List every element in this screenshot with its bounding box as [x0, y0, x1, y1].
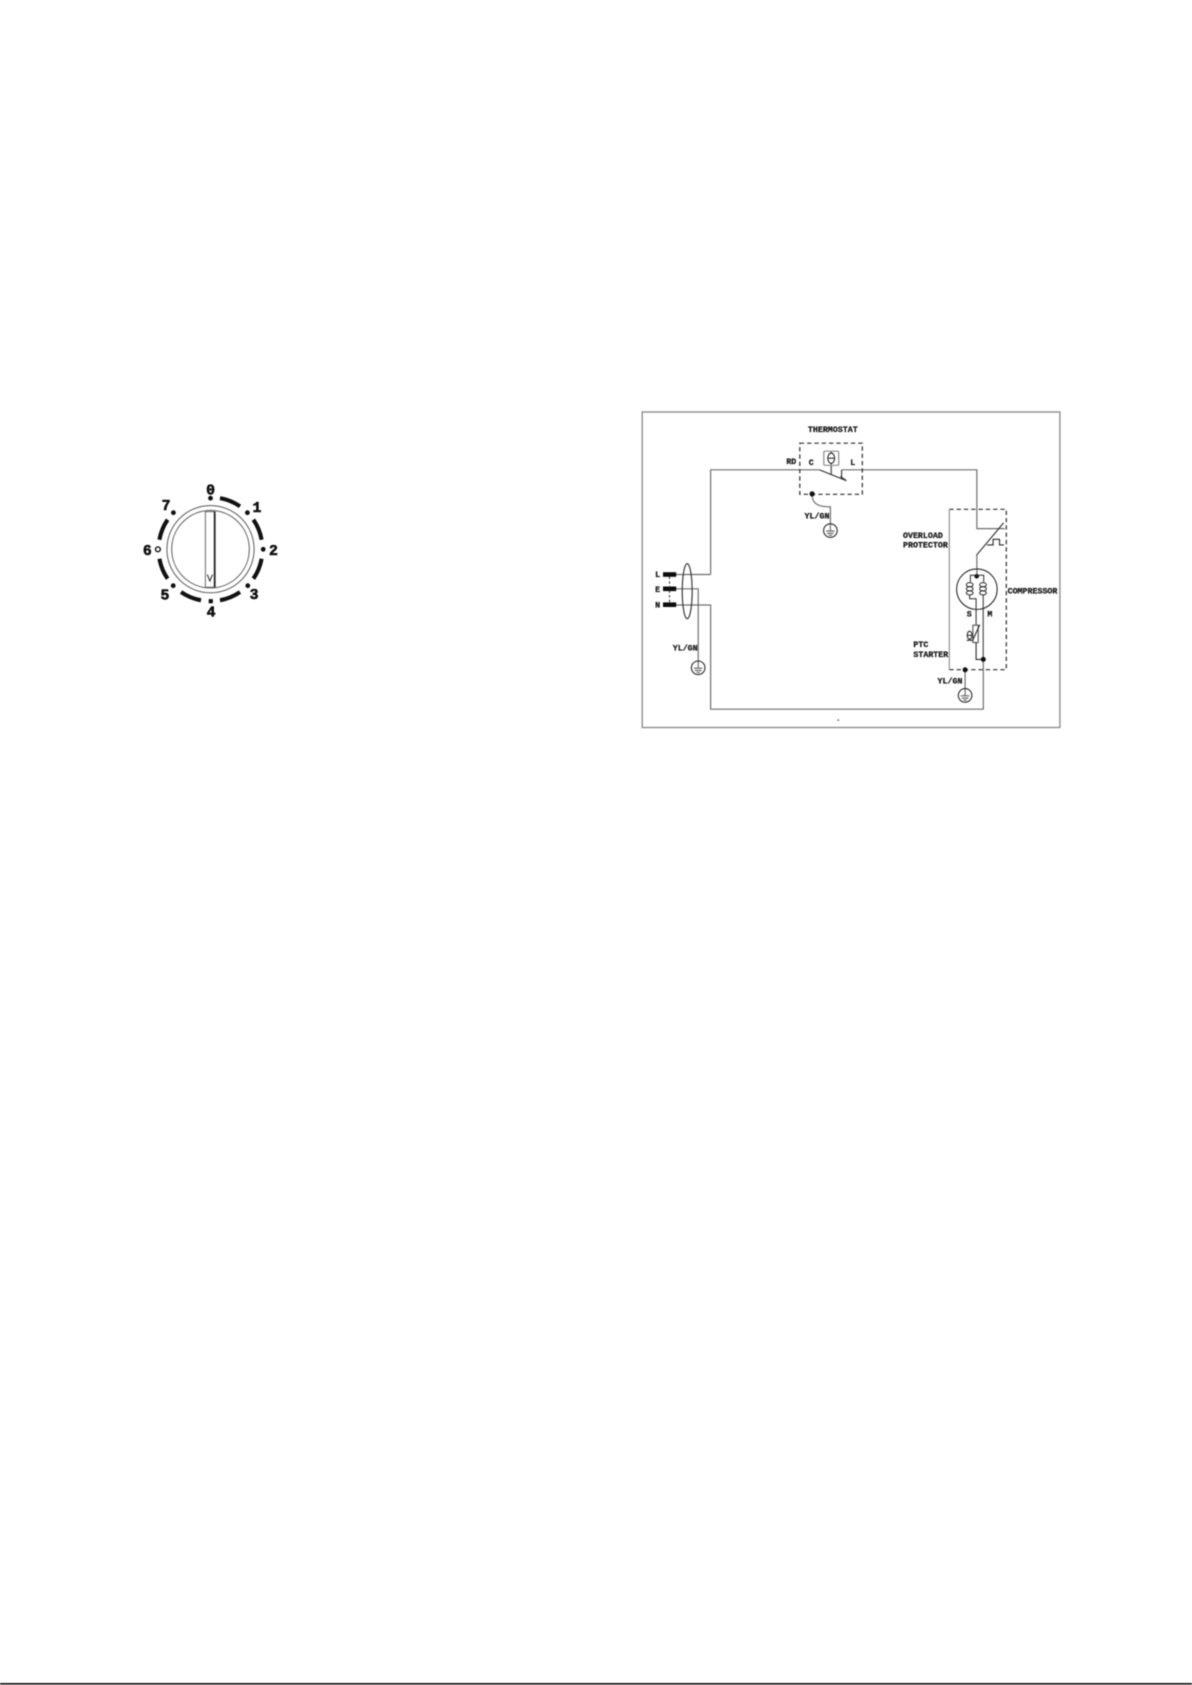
svg-text:7: 7 — [162, 499, 171, 515]
svg-text:E: E — [655, 586, 660, 595]
svg-text:6: 6 — [143, 544, 152, 560]
svg-text:5: 5 — [160, 588, 169, 604]
svg-text:YL/GN: YL/GN — [673, 643, 698, 653]
svg-text:RD: RD — [786, 458, 796, 467]
svg-text:2: 2 — [269, 544, 278, 560]
svg-text:PROTECTOR: PROTECTOR — [903, 542, 948, 551]
svg-text:0: 0 — [206, 483, 215, 499]
svg-text:S: S — [967, 611, 972, 620]
svg-text:COMPRESSOR: COMPRESSOR — [1008, 588, 1058, 597]
svg-text:3: 3 — [250, 588, 259, 604]
svg-text:PTC: PTC — [913, 641, 928, 650]
svg-text:OVERLOAD: OVERLOAD — [903, 532, 943, 541]
svg-text:L: L — [655, 571, 660, 580]
svg-text:1: 1 — [253, 501, 262, 517]
svg-text:STARTER: STARTER — [913, 651, 948, 660]
svg-text:THERMOSTAT: THERMOSTAT — [808, 426, 858, 435]
svg-text:N: N — [655, 602, 660, 611]
svg-text:4: 4 — [207, 605, 216, 621]
svg-text:M: M — [987, 611, 992, 620]
svg-text:YL/GN: YL/GN — [805, 512, 830, 522]
svg-text:L: L — [850, 459, 855, 468]
svg-text:C: C — [809, 459, 814, 468]
svg-text:YL/GN: YL/GN — [938, 677, 963, 687]
